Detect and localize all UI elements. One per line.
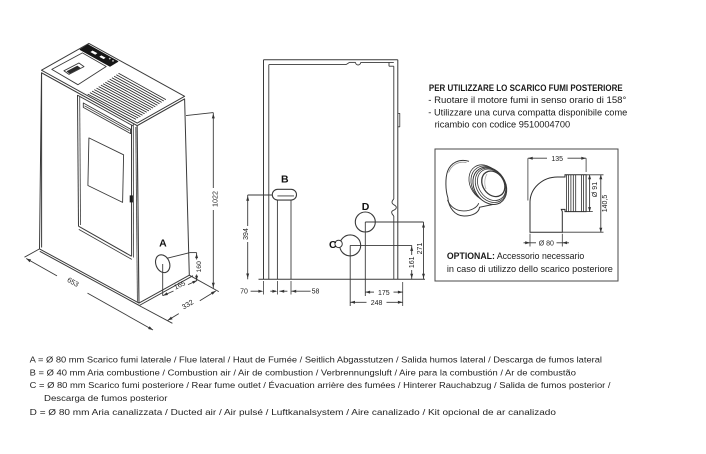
svg-text:OPTIONAL: Accessorio necessari: OPTIONAL: Accessorio necessario [447,251,584,261]
svg-text:58: 58 [312,289,320,296]
svg-text:70: 70 [240,289,248,296]
svg-text:ricambio con codice 9510004700: ricambio con codice 9510004700 [435,120,570,130]
svg-text:Ø 91: Ø 91 [592,182,599,197]
svg-text:248: 248 [371,300,383,307]
svg-text:332: 332 [180,297,195,311]
svg-text:D = Ø 80 mm Aria canalizzata /: D = Ø 80 mm Aria canalizzata / Ducted ai… [30,407,556,417]
svg-text:394: 394 [243,228,250,240]
svg-text:160: 160 [196,261,203,273]
svg-text:C = Ø 80 mm Scarico fumi poste: C = Ø 80 mm Scarico fumi posteriore / Re… [30,380,611,390]
svg-text:- Ruotare il motore fumi in s: - Ruotare il motore fumi in senso orario… [428,95,626,105]
svg-text:1022: 1022 [210,191,219,207]
svg-text:- Utilizzare una curva compatt: - Utilizzare una curva compatta disponib… [428,107,627,117]
svg-text:653: 653 [66,275,81,289]
svg-text:Ø 80: Ø 80 [539,241,554,248]
svg-text:C: C [329,239,337,251]
svg-text:271: 271 [417,243,424,255]
svg-text:A: A [159,238,167,250]
svg-text:B: B [281,173,289,185]
svg-text:PER UTILIZZARE LO SCARICO FUMI: PER UTILIZZARE LO SCARICO FUMI POSTERIOR… [429,83,623,93]
svg-text:140,5: 140,5 [602,195,609,213]
svg-text:A = Ø 80 mm Scarico fumi later: A = Ø 80 mm Scarico fumi laterale / Flue… [30,355,602,365]
svg-text:D: D [362,201,370,213]
svg-text:135: 135 [551,156,563,163]
svg-text:in caso di utilizzo dello scar: in caso di utilizzo dello scarico poster… [447,264,613,274]
svg-text:175: 175 [378,290,390,297]
svg-text:B = Ø 40 mm Aria combustione /: B = Ø 40 mm Aria combustione / Combustio… [30,367,576,377]
svg-text:Descarga de fumos posterior: Descarga de fumos posterior [44,393,168,403]
svg-text:161: 161 [409,256,416,268]
